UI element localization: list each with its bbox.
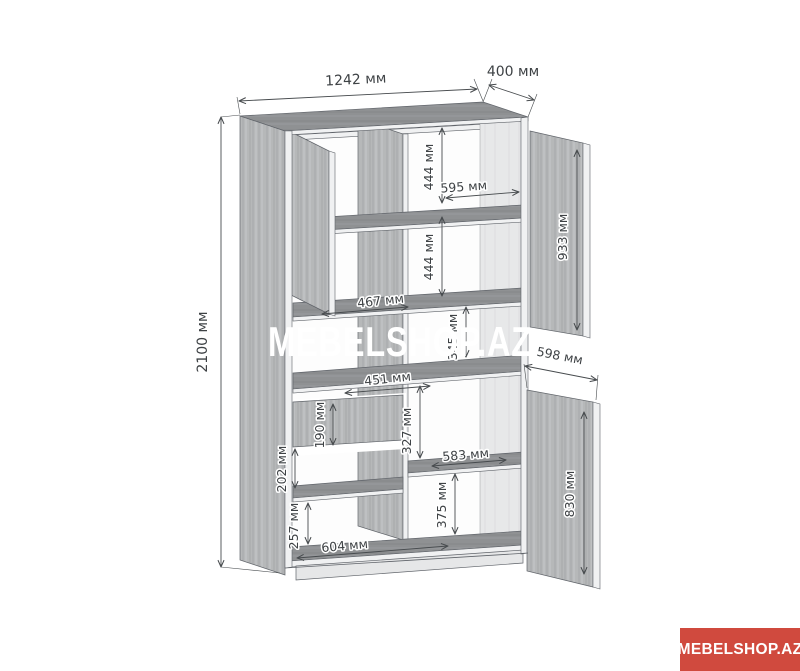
brand-badge: MEBELSHOP.AZ — [680, 628, 800, 671]
furniture-diagram: 2100 мм 1242 мм 400 мм 933 мм 830 мм 598… — [0, 0, 800, 671]
dim-drawer-front-height-label: 190 мм — [312, 402, 327, 449]
center-watermark: MEBELSHOP.AZ — [268, 318, 532, 365]
dim-total-depth-label: 400 мм — [487, 64, 539, 80]
dim-top-door-height-label: 933 мм — [555, 214, 570, 261]
dim-bottom-right-gap-label: 375 мм — [434, 482, 449, 529]
dim-upper-right-gap-label: 444 мм — [421, 144, 436, 191]
left-door-open — [291, 132, 335, 316]
dim-bottom-left-gap-label: 257 мм — [286, 503, 301, 550]
dim-lower-right-gap-label: 444 мм — [421, 234, 436, 281]
brand-badge-text: MEBELSHOP.AZ — [678, 641, 800, 659]
dim-bottom-door-height-label: 830 мм — [562, 471, 577, 518]
dim-total-height-label: 2100 мм — [195, 311, 211, 372]
dim-below-drawer-gap-label: 202 мм — [274, 446, 289, 493]
dim-total-width-label: 1242 мм — [325, 70, 387, 89]
drawer — [291, 393, 406, 456]
screenshot-stage: 2100 мм 1242 мм 400 мм 933 мм 830 мм 598… — [0, 0, 800, 671]
dim-below-desk-gap-label: 327 мм — [399, 408, 414, 455]
dim-bottom-door-width-label: 598 мм — [536, 344, 585, 368]
drawer-front — [293, 395, 403, 447]
